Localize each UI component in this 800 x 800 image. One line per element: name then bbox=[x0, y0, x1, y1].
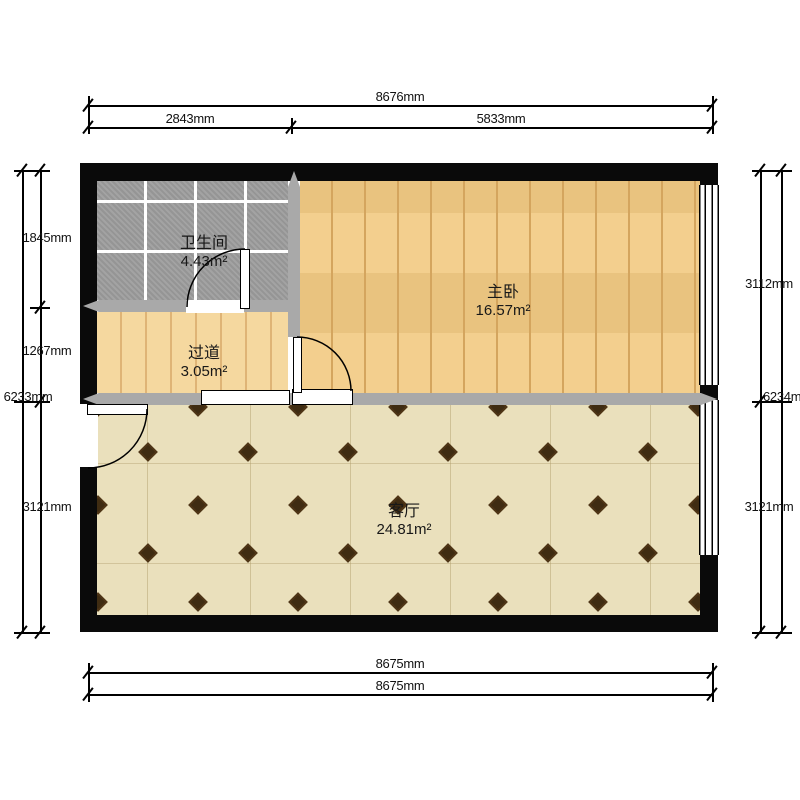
dimension-line bbox=[88, 105, 712, 107]
bedroom-label: 主卧 16.57m² bbox=[433, 283, 573, 320]
living-room-area: 24.81m² bbox=[334, 521, 474, 539]
dim-right-seg1: 3112mm bbox=[709, 276, 800, 291]
dim-right-total: 6234mm bbox=[763, 389, 800, 404]
dim-bottom-1: 8675mm bbox=[340, 656, 460, 671]
dim-right-seg2: 3121mm bbox=[709, 499, 800, 514]
dim-top-seg1: 2843mm bbox=[130, 111, 250, 126]
bedroom-area: 16.57m² bbox=[433, 302, 573, 320]
hallway-label: 过道 3.05m² bbox=[134, 344, 274, 381]
bathroom-label: 卫生间 4.43m² bbox=[134, 234, 274, 271]
living-room-name: 客厅 bbox=[334, 502, 474, 521]
dim-left-total: 6233mm bbox=[0, 389, 88, 404]
dim-bottom-2: 8675mm bbox=[340, 678, 460, 693]
dimension-line bbox=[88, 127, 712, 129]
hallway-area: 3.05m² bbox=[134, 363, 274, 381]
bathroom-area: 4.43m² bbox=[134, 253, 274, 271]
dim-top-total: 8676mm bbox=[340, 89, 460, 104]
living-room-label: 客厅 24.81m² bbox=[334, 502, 474, 539]
floor-plan: 8676mm 2843mm 5833mm 8675mm 8675mm 1845m… bbox=[0, 0, 800, 800]
dimension-line bbox=[88, 672, 712, 674]
dim-left-seg3: 3121mm bbox=[0, 499, 107, 514]
dim-left-seg2: 1267mm bbox=[0, 343, 107, 358]
bathroom-name: 卫生间 bbox=[134, 234, 274, 253]
hallway-name: 过道 bbox=[134, 344, 274, 363]
entry-door-arc bbox=[88, 409, 147, 468]
dim-left-seg1: 1845mm bbox=[0, 230, 107, 245]
dimension-line bbox=[88, 694, 712, 696]
dim-top-seg2: 5833mm bbox=[441, 111, 561, 126]
bedroom-name: 主卧 bbox=[433, 283, 573, 302]
bedroom-door-arc bbox=[297, 337, 351, 391]
